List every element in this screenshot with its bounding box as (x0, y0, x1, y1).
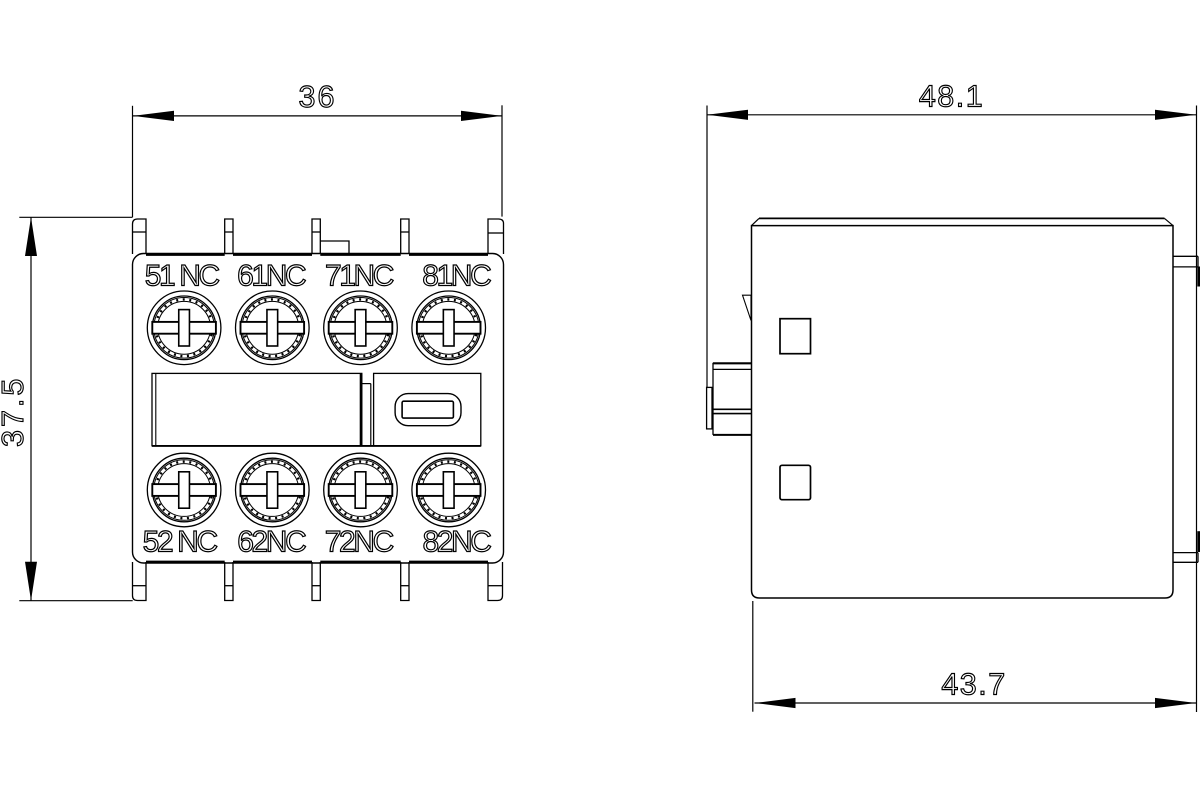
svg-text:81NC: 81NC (422, 259, 491, 292)
svg-text:72NC: 72NC (325, 525, 394, 558)
svg-text:62NC: 62NC (237, 525, 306, 558)
svg-text:37.5: 37.5 (0, 376, 30, 447)
svg-text:43.7: 43.7 (941, 668, 1006, 702)
svg-text:36: 36 (299, 80, 337, 114)
svg-text:71NC: 71NC (325, 259, 394, 292)
svg-text:51 NC: 51 NC (145, 259, 220, 292)
svg-text:52 NC: 52 NC (143, 525, 218, 558)
svg-text:82NC: 82NC (422, 525, 491, 558)
svg-text:48.1: 48.1 (919, 80, 984, 114)
svg-text:61NC: 61NC (237, 259, 306, 292)
